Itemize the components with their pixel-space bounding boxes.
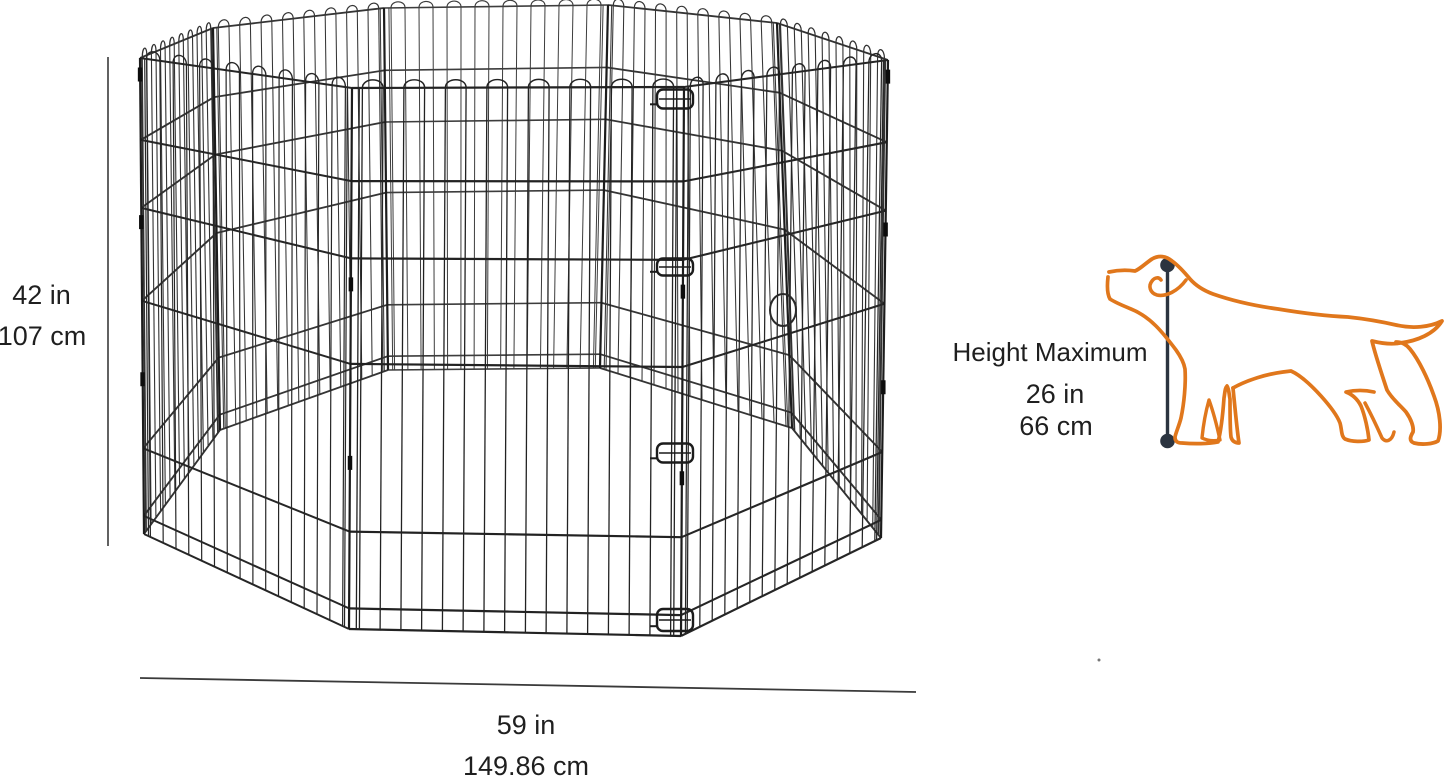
svg-text:42 in: 42 in [12, 280, 71, 310]
svg-text:Height Maximum: Height Maximum [952, 337, 1147, 367]
svg-text:59 in: 59 in [497, 710, 556, 740]
svg-text:107 cm: 107 cm [0, 321, 86, 351]
svg-text:149.86 cm: 149.86 cm [463, 751, 589, 776]
svg-text:26 in: 26 in [1026, 379, 1085, 409]
svg-text:66 cm: 66 cm [1019, 411, 1093, 441]
